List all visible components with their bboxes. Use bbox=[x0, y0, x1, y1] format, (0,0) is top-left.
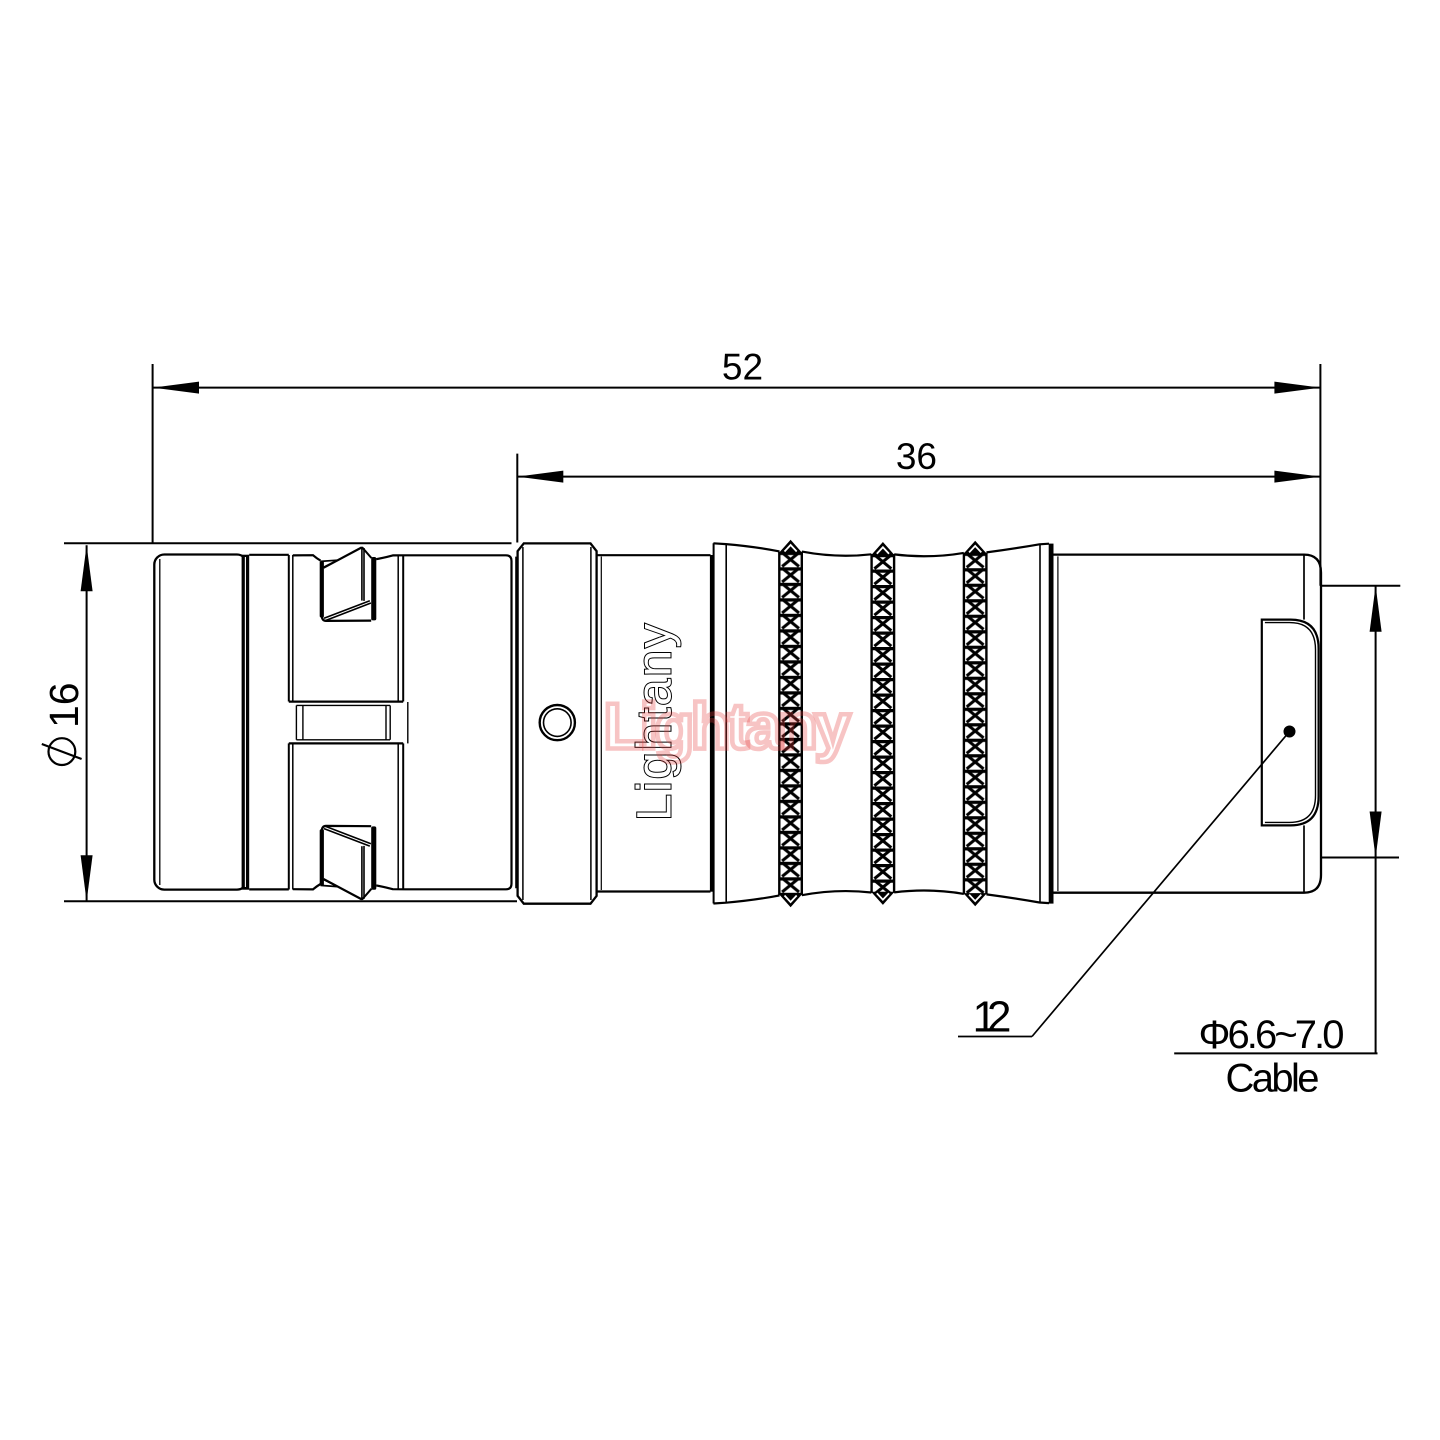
svg-text:36: 36 bbox=[896, 436, 937, 477]
svg-text:16: 16 bbox=[41, 682, 87, 728]
svg-text:Lightany: Lightany bbox=[604, 690, 851, 763]
svg-text:Cable: Cable bbox=[1226, 1057, 1320, 1101]
svg-text:Φ6.6~7.0: Φ6.6~7.0 bbox=[1199, 1013, 1345, 1057]
svg-text:52: 52 bbox=[722, 347, 763, 388]
svg-text:12: 12 bbox=[973, 992, 1012, 1041]
